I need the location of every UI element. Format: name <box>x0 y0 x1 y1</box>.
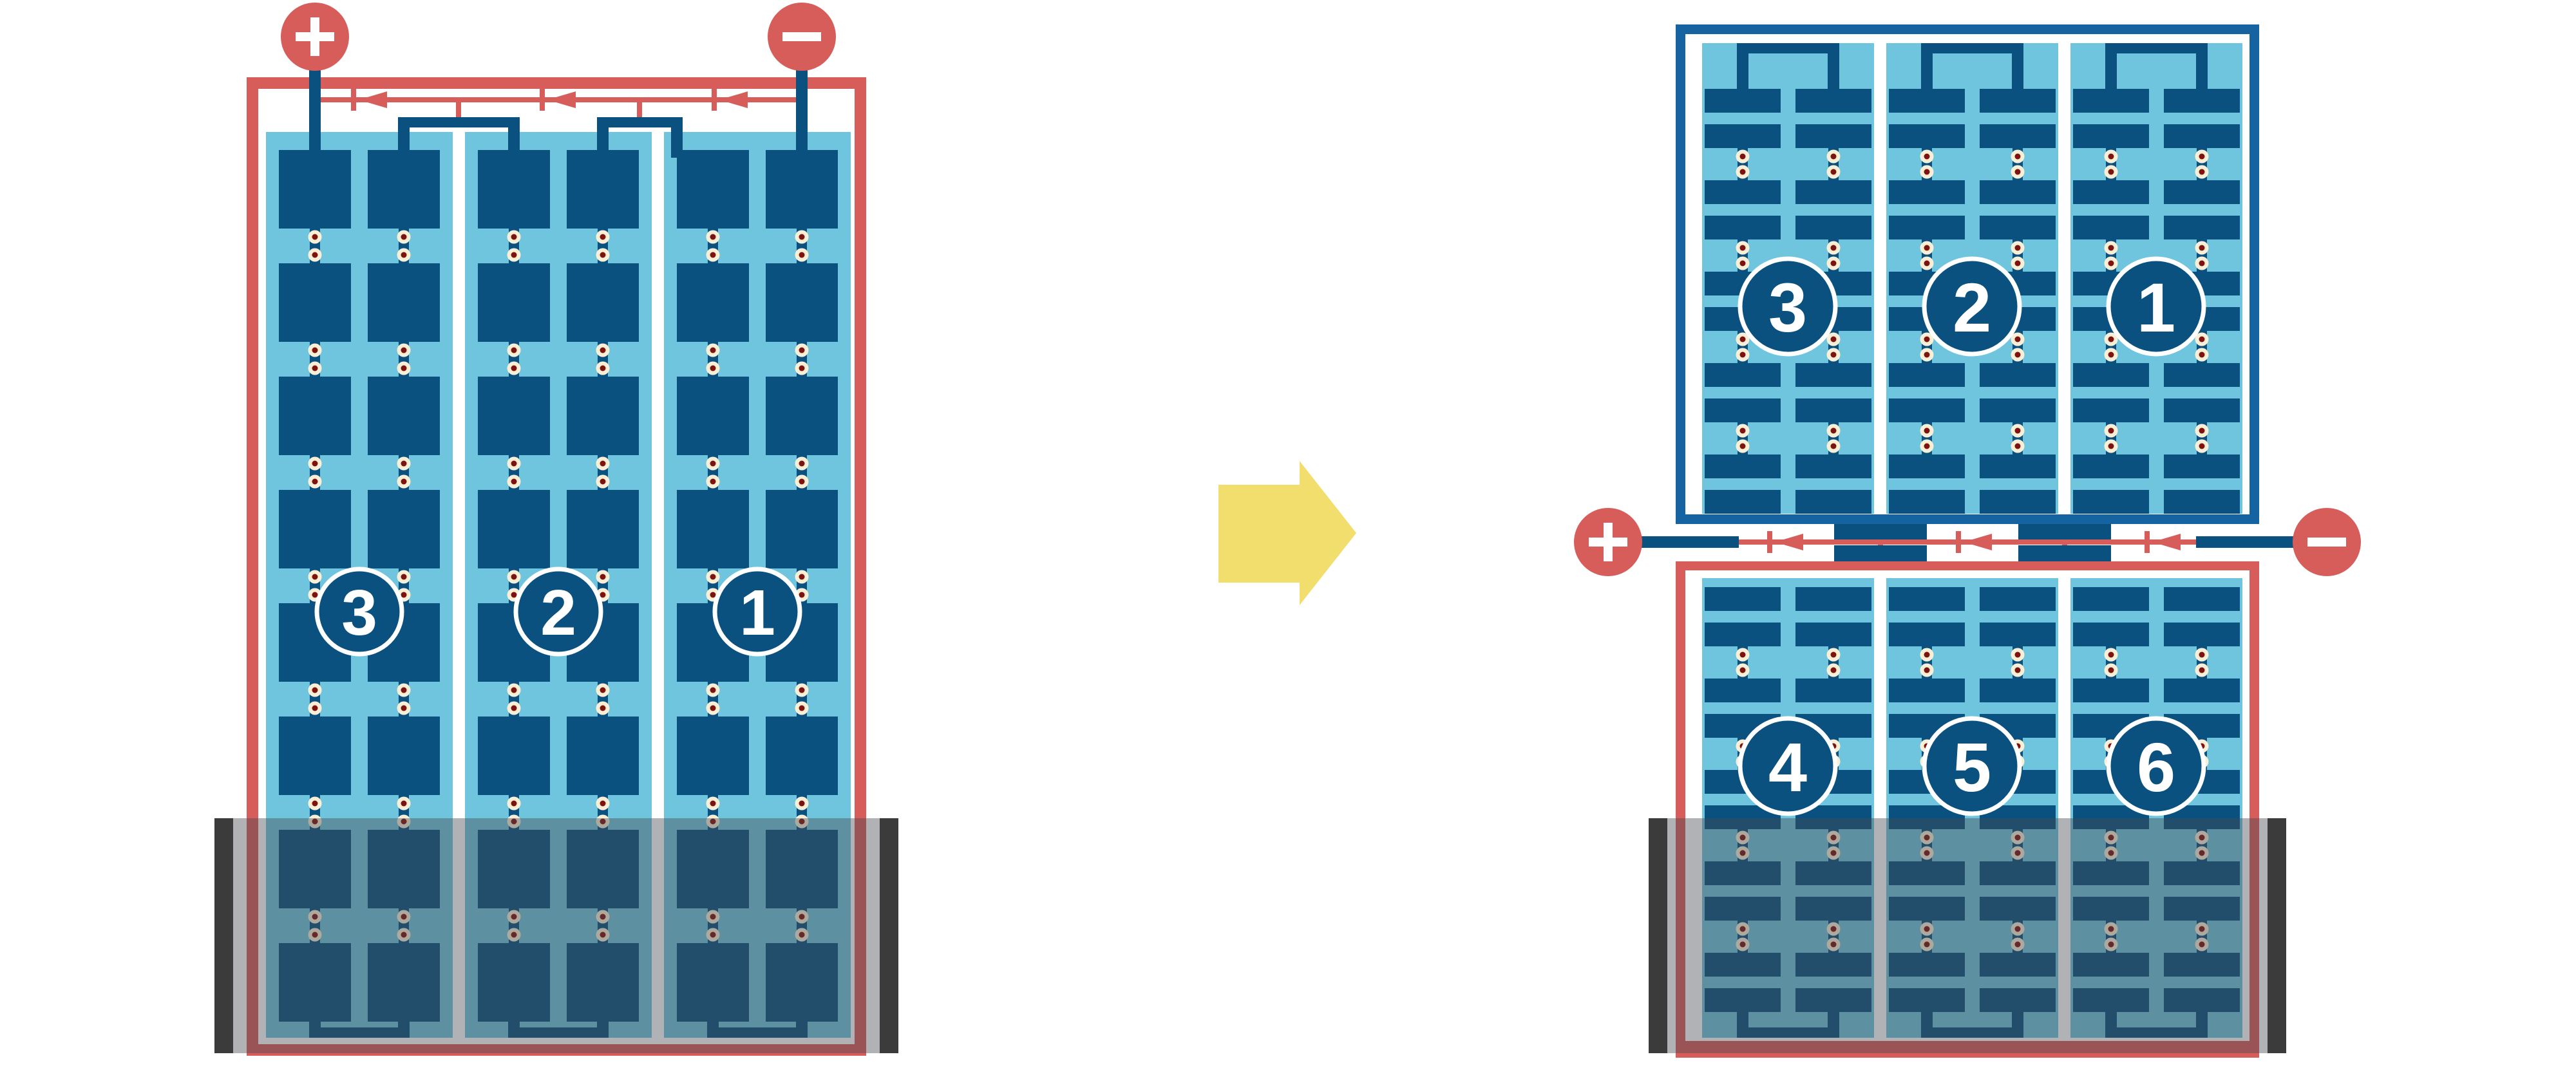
solder-joint-core <box>511 574 517 580</box>
connector-bar <box>398 117 520 127</box>
half-cell <box>2164 89 2240 113</box>
solder-joint-core <box>2108 337 2114 342</box>
string-gap <box>2058 43 2070 514</box>
solder-joint-core <box>1740 169 1746 175</box>
shade-overlay-right <box>1649 818 2286 1053</box>
solder-joint-core <box>2199 428 2205 434</box>
string-number-badge: 3 <box>317 569 402 654</box>
half-cell <box>2073 89 2149 113</box>
solder-joint-core <box>799 688 805 693</box>
half-cell <box>1705 679 1781 702</box>
diode-triangle <box>1775 534 1803 550</box>
solar-cell <box>368 490 440 568</box>
cell-joint <box>2105 645 2118 680</box>
half-cell <box>1980 490 2056 514</box>
solder-joint-core <box>401 366 407 371</box>
diode-cathode-bar <box>540 89 545 111</box>
cell-joint <box>2195 645 2209 680</box>
solder-joint-core <box>600 592 606 598</box>
solder-joint-core <box>710 574 716 580</box>
solder-joint-core <box>1924 652 1930 658</box>
solar-cell <box>478 490 550 568</box>
solder-joint-core <box>1740 444 1746 449</box>
half-cell <box>1795 216 1871 239</box>
diode-triangle <box>2152 534 2181 550</box>
solar-cell <box>279 717 351 795</box>
solder-joint-core <box>401 574 407 580</box>
cell-joint <box>308 454 322 491</box>
solder-joint-core <box>1924 668 1930 673</box>
half-cell <box>1795 587 1871 611</box>
solar-cell <box>478 263 550 342</box>
cell-joint <box>1920 238 1934 273</box>
solder-joint-core <box>710 592 716 598</box>
half-cell <box>2164 180 2240 204</box>
shade-edge-bar <box>1649 818 1667 1053</box>
cell-joint <box>1827 238 1841 273</box>
cell-joint <box>1920 147 1934 182</box>
solder-joint-core <box>401 348 407 353</box>
solder-joint-core <box>401 592 407 598</box>
half-cell <box>1705 398 1781 422</box>
solder-joint-core <box>511 592 517 598</box>
solder-joint-core <box>312 592 318 598</box>
plus-icon <box>310 17 319 56</box>
cell-joint <box>2011 645 2025 680</box>
solder-joint-core <box>2199 444 2205 449</box>
solder-joint-core <box>799 234 805 240</box>
cell-joint <box>2195 238 2209 273</box>
half-cut-solar-module-shading-diagram: 321321456 <box>0 0 2576 1068</box>
negative-terminal-icon <box>2293 508 2361 576</box>
string-number-label: 6 <box>2137 728 2175 806</box>
cell-joint <box>308 227 322 265</box>
half-cell <box>2164 623 2240 646</box>
solder-joint-core <box>1831 428 1837 434</box>
half-cell <box>1980 679 2056 702</box>
half-cell <box>2073 180 2149 204</box>
solder-joint-core <box>2015 652 2021 658</box>
string-number-label: 1 <box>2137 268 2175 346</box>
solder-joint-core <box>799 479 805 485</box>
solar-cell <box>766 490 838 568</box>
string-number-badge: 6 <box>2108 718 2204 814</box>
cell-joint <box>507 680 521 718</box>
solder-joint-core <box>600 461 606 467</box>
half-cell <box>1889 587 1965 611</box>
shade-overlay-left <box>214 818 898 1053</box>
diode-triangle <box>1964 534 1992 550</box>
junction-tab <box>2018 545 2111 561</box>
solder-joint-core <box>710 706 716 711</box>
half-cell <box>2073 124 2149 148</box>
solder-joint-core <box>2015 245 2021 251</box>
solar-cell <box>677 377 749 455</box>
solder-joint-core <box>312 574 318 580</box>
cell-joint <box>1827 645 1841 680</box>
cell-joint <box>2105 147 2118 182</box>
solder-joint-core <box>600 801 606 807</box>
diode-cathode-bar <box>1956 531 1961 553</box>
half-cell <box>1795 398 1871 422</box>
half-cell <box>1889 398 1965 422</box>
arrow-head <box>1300 461 1356 605</box>
half-cell <box>2073 216 2149 239</box>
terminal-wire <box>1633 536 1739 548</box>
solder-joint-core <box>401 234 407 240</box>
solder-joint-core <box>710 461 716 467</box>
connector-bar <box>597 117 683 127</box>
solder-joint-core <box>1740 337 1746 342</box>
cell-joint <box>507 227 521 265</box>
solar-cell <box>766 377 838 455</box>
solder-joint-core <box>1924 428 1930 434</box>
solder-joint-core <box>312 706 318 711</box>
half-cell <box>1980 124 2056 148</box>
cell-joint <box>596 680 610 718</box>
solder-joint-core <box>2015 154 2021 160</box>
solder-joint-core <box>2108 652 2114 658</box>
connector-bar <box>2105 43 2208 53</box>
solar-cell <box>766 150 838 229</box>
solder-joint-core <box>2199 652 2205 658</box>
half-cell <box>2164 490 2240 514</box>
solder-joint-core <box>799 574 805 580</box>
half-cell <box>2164 454 2240 478</box>
string-number-label: 4 <box>1768 728 1807 806</box>
cell-joint <box>1736 147 1750 182</box>
string-number-label: 3 <box>341 577 377 649</box>
solder-joint-core <box>600 366 606 371</box>
solder-joint-core <box>2015 337 2021 342</box>
solder-joint-core <box>710 801 716 807</box>
solar-cell <box>677 717 749 795</box>
half-cell <box>2073 363 2149 387</box>
half-cell <box>1705 623 1781 646</box>
solder-joint-core <box>1740 154 1746 160</box>
cell-joint <box>397 341 411 378</box>
solder-joint-core <box>2199 352 2205 358</box>
cell-joint <box>507 454 521 491</box>
bypass-diode-circuit <box>315 89 802 120</box>
solar-cell <box>677 490 749 568</box>
string-number-badge: 1 <box>715 569 800 654</box>
solder-joint-core <box>2199 337 2205 342</box>
half-cell <box>1705 363 1781 387</box>
cell-joint <box>795 341 809 378</box>
negative-terminal-icon <box>768 3 836 71</box>
solder-joint-core <box>401 252 407 258</box>
cell-joint <box>2011 421 2025 456</box>
string-number-badge: 4 <box>1740 718 1835 814</box>
half-cell <box>1889 490 1965 514</box>
solar-cell <box>677 150 749 229</box>
solder-joint-core <box>1740 668 1746 673</box>
diode-tap-stub <box>637 102 642 120</box>
half-cell <box>2164 124 2240 148</box>
solder-joint-core <box>511 801 517 807</box>
solder-joint-core <box>1740 352 1746 358</box>
solder-joint-core <box>1740 261 1746 267</box>
cell-joint <box>397 454 411 491</box>
solder-joint-core <box>1831 261 1837 267</box>
half-cell <box>1889 363 1965 387</box>
minus-icon <box>2307 538 2346 547</box>
cell-joint <box>1736 645 1750 680</box>
solder-joint-core <box>401 706 407 711</box>
half-cell <box>1980 587 2056 611</box>
half-cell <box>1980 398 2056 422</box>
half-cell <box>2164 216 2240 239</box>
solder-joint-core <box>600 574 606 580</box>
solder-joint-core <box>401 461 407 467</box>
solder-joint-core <box>2108 668 2114 673</box>
half-cell <box>1795 490 1871 514</box>
string-number-label: 2 <box>540 577 576 649</box>
solder-joint-core <box>1740 428 1746 434</box>
plus-icon <box>1604 523 1613 561</box>
cell-joint <box>596 341 610 378</box>
solder-joint-core <box>511 252 517 258</box>
cell-joint <box>308 341 322 378</box>
half-cell <box>1795 679 1871 702</box>
solar-cell <box>368 150 440 229</box>
cell-joint <box>397 680 411 718</box>
solder-joint-core <box>511 348 517 353</box>
string-number-badge: 1 <box>2108 259 2204 354</box>
terminal-wire <box>309 64 321 161</box>
solder-joint-core <box>799 252 805 258</box>
half-cell <box>1889 124 1965 148</box>
half-cell <box>1980 454 2056 478</box>
solar-cell <box>567 263 639 342</box>
half-cell <box>2073 490 2149 514</box>
cell-joint <box>2105 421 2118 456</box>
solder-joint-core <box>1924 337 1930 342</box>
solder-joint-core <box>1831 444 1837 449</box>
solar-cell <box>279 490 351 568</box>
shade-edge-bar <box>2268 818 2286 1053</box>
solar-cell <box>766 263 838 342</box>
solder-joint-core <box>2015 444 2021 449</box>
shade-edge-bar <box>880 818 898 1053</box>
solar-cell <box>567 377 639 455</box>
solder-joint-core <box>710 479 716 485</box>
half-cell <box>1889 623 1965 646</box>
solder-joint-core <box>799 706 805 711</box>
solder-joint-core <box>600 348 606 353</box>
solder-joint-core <box>600 688 606 693</box>
junction-tab <box>1834 524 1927 540</box>
string-number-label: 2 <box>1953 268 1991 346</box>
solder-joint-core <box>2199 261 2205 267</box>
solder-joint-core <box>600 706 606 711</box>
cell-joint <box>308 680 322 718</box>
half-cell <box>1705 180 1781 204</box>
solder-joint-core <box>799 592 805 598</box>
solder-joint-core <box>312 234 318 240</box>
diode-triangle <box>547 91 576 108</box>
solder-joint-core <box>2015 668 2021 673</box>
positive-terminal-icon <box>1574 508 1642 576</box>
solder-joint-core <box>511 461 517 467</box>
half-cell <box>1980 89 2056 113</box>
cell-joint <box>2105 238 2118 273</box>
half-cell <box>2164 363 2240 387</box>
string-number-badge: 3 <box>1740 259 1835 354</box>
solder-joint-core <box>1831 169 1837 175</box>
diode-cathode-bar <box>1767 531 1772 553</box>
solar-cell <box>567 150 639 229</box>
solder-joint-core <box>600 234 606 240</box>
solder-joint-core <box>1831 337 1837 342</box>
solder-joint-core <box>1740 652 1746 658</box>
diode-tap-stub <box>456 102 461 120</box>
solar-cell <box>368 263 440 342</box>
solder-joint-core <box>511 688 517 693</box>
half-cell <box>1705 454 1781 478</box>
half-cell <box>1980 363 2056 387</box>
solder-joint-core <box>710 366 716 371</box>
half-cell <box>2073 587 2149 611</box>
right-top-half: 321 <box>1681 30 2255 520</box>
solder-joint-core <box>2108 352 2114 358</box>
cell-joint <box>795 680 809 718</box>
string-gap <box>1874 43 1886 514</box>
cell-joint <box>2011 238 2025 273</box>
cell-joint <box>1827 421 1841 456</box>
solder-joint-core <box>1924 245 1930 251</box>
half-cell <box>1795 623 1871 646</box>
cell-joint <box>1736 421 1750 456</box>
half-cell <box>2164 679 2240 702</box>
string-number-label: 3 <box>1768 268 1807 346</box>
solder-joint-core <box>312 461 318 467</box>
half-cell <box>2164 398 2240 422</box>
string-number-badge: 2 <box>516 569 601 654</box>
solder-joint-core <box>1924 154 1930 160</box>
solder-joint-core <box>1924 261 1930 267</box>
half-cell <box>1889 454 1965 478</box>
string-number-badge: 2 <box>1924 259 2020 354</box>
string-number-label: 1 <box>739 577 775 649</box>
half-cell <box>1980 180 2056 204</box>
cell-joint <box>706 680 720 718</box>
shade-region <box>1649 818 2286 1053</box>
solder-joint-core <box>799 366 805 371</box>
solar-cell <box>368 717 440 795</box>
solar-cell <box>368 377 440 455</box>
string-number-badge: 5 <box>1924 718 2020 814</box>
solder-joint-core <box>2199 668 2205 673</box>
half-cell <box>1795 363 1871 387</box>
solder-joint-core <box>2108 428 2114 434</box>
half-cell <box>2073 454 2149 478</box>
solder-joint-core <box>2199 169 2205 175</box>
solder-joint-core <box>600 479 606 485</box>
connector-bar <box>1737 43 1839 53</box>
solar-cell <box>279 377 351 455</box>
cell-joint <box>706 454 720 491</box>
diode-cathode-bar <box>2145 531 2150 553</box>
solder-joint-core <box>2015 261 2021 267</box>
bottom-half-frame-top <box>1676 561 2259 570</box>
half-cell <box>2073 623 2149 646</box>
half-cell <box>1889 679 1965 702</box>
solder-joint-core <box>401 801 407 807</box>
half-cell <box>1705 216 1781 239</box>
solder-joint-core <box>710 252 716 258</box>
terminal-wire <box>796 64 808 161</box>
solder-joint-core <box>710 688 716 693</box>
junction-tab <box>2018 524 2111 540</box>
solder-joint-core <box>1831 245 1837 251</box>
solder-joint-core <box>401 479 407 485</box>
solder-joint-core <box>2015 169 2021 175</box>
solar-cell <box>279 150 351 229</box>
solder-joint-core <box>710 348 716 353</box>
diode-cathode-bar <box>712 89 717 111</box>
solar-cell <box>677 263 749 342</box>
half-cell <box>1705 587 1781 611</box>
cell-joint <box>507 341 521 378</box>
cell-joint <box>795 454 809 491</box>
positive-terminal-icon <box>281 3 349 71</box>
solder-joint-core <box>1831 154 1837 160</box>
cell-joint <box>795 227 809 265</box>
solder-joint-core <box>2015 428 2021 434</box>
solar-cell <box>279 263 351 342</box>
solder-joint-core <box>312 801 318 807</box>
string-number-label: 5 <box>1953 728 1991 806</box>
solar-cell <box>766 717 838 795</box>
diode-cathode-bar <box>351 89 356 111</box>
solder-joint-core <box>1740 245 1746 251</box>
solder-joint-core <box>312 366 318 371</box>
half-cell <box>1889 89 1965 113</box>
half-cell <box>1795 454 1871 478</box>
cell-joint <box>1736 238 1750 273</box>
half-cell <box>1705 490 1781 514</box>
solder-joint-core <box>1924 352 1930 358</box>
cell-joint <box>1827 147 1841 182</box>
solder-joint-core <box>799 801 805 807</box>
solder-joint-core <box>1924 169 1930 175</box>
solder-joint-core <box>2015 352 2021 358</box>
solar-cell <box>567 490 639 568</box>
half-cell <box>2164 587 2240 611</box>
cell-joint <box>706 341 720 378</box>
solder-joint-core <box>600 252 606 258</box>
half-cell <box>1795 180 1871 204</box>
shade-region <box>214 818 898 1053</box>
solder-joint-core <box>312 252 318 258</box>
solder-joint-core <box>710 234 716 240</box>
solar-cell <box>478 377 550 455</box>
solder-joint-core <box>2108 444 2114 449</box>
cell-joint <box>706 227 720 265</box>
solder-joint-core <box>1831 352 1837 358</box>
solder-joint-core <box>2199 154 2205 160</box>
solder-joint-core <box>312 348 318 353</box>
solder-joint-core <box>2108 261 2114 267</box>
solder-joint-core <box>511 366 517 371</box>
solder-joint-core <box>1831 652 1837 658</box>
solar-cell <box>478 150 550 229</box>
diode-triangle <box>359 91 387 108</box>
solder-joint-core <box>511 234 517 240</box>
half-cell <box>1980 623 2056 646</box>
